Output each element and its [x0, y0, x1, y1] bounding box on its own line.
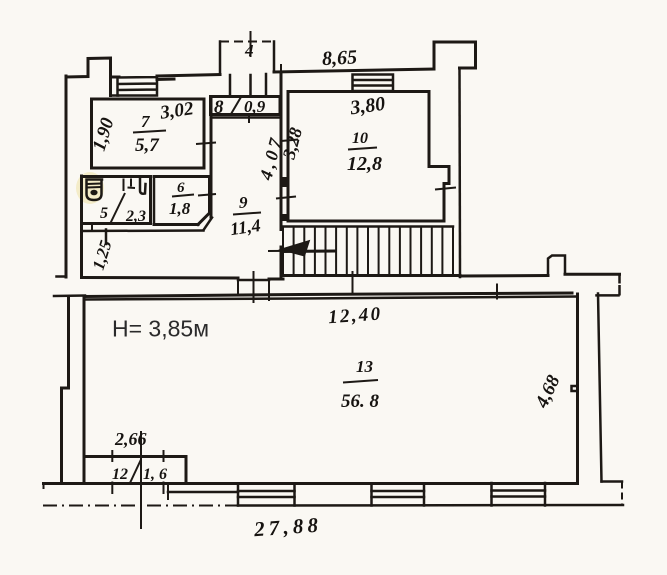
svg-text:8,65: 8,65 — [322, 46, 358, 70]
svg-text:5,7: 5,7 — [135, 135, 160, 156]
svg-text:2,66: 2,66 — [114, 429, 147, 449]
svg-text:2,3: 2,3 — [125, 208, 146, 225]
svg-text:H= 3,85м: H= 3,85м — [112, 316, 209, 342]
svg-text:13: 13 — [356, 357, 374, 376]
svg-text:0,9: 0,9 — [244, 97, 266, 116]
svg-text:1,8: 1,8 — [169, 199, 191, 218]
svg-text:12: 12 — [112, 466, 128, 483]
svg-text:1, 6: 1, 6 — [143, 466, 167, 483]
svg-text:56. 8: 56. 8 — [341, 391, 380, 412]
svg-text:12,8: 12,8 — [347, 153, 382, 175]
svg-text:8: 8 — [214, 97, 224, 118]
svg-text:11,4: 11,4 — [229, 215, 262, 239]
svg-text:10: 10 — [352, 130, 368, 147]
svg-text:12,40: 12,40 — [327, 304, 381, 329]
svg-text:4: 4 — [244, 41, 254, 60]
svg-text:9: 9 — [239, 193, 248, 212]
svg-text:6: 6 — [177, 180, 185, 196]
svg-text:5: 5 — [100, 205, 108, 222]
svg-text:27,88: 27,88 — [252, 513, 319, 542]
